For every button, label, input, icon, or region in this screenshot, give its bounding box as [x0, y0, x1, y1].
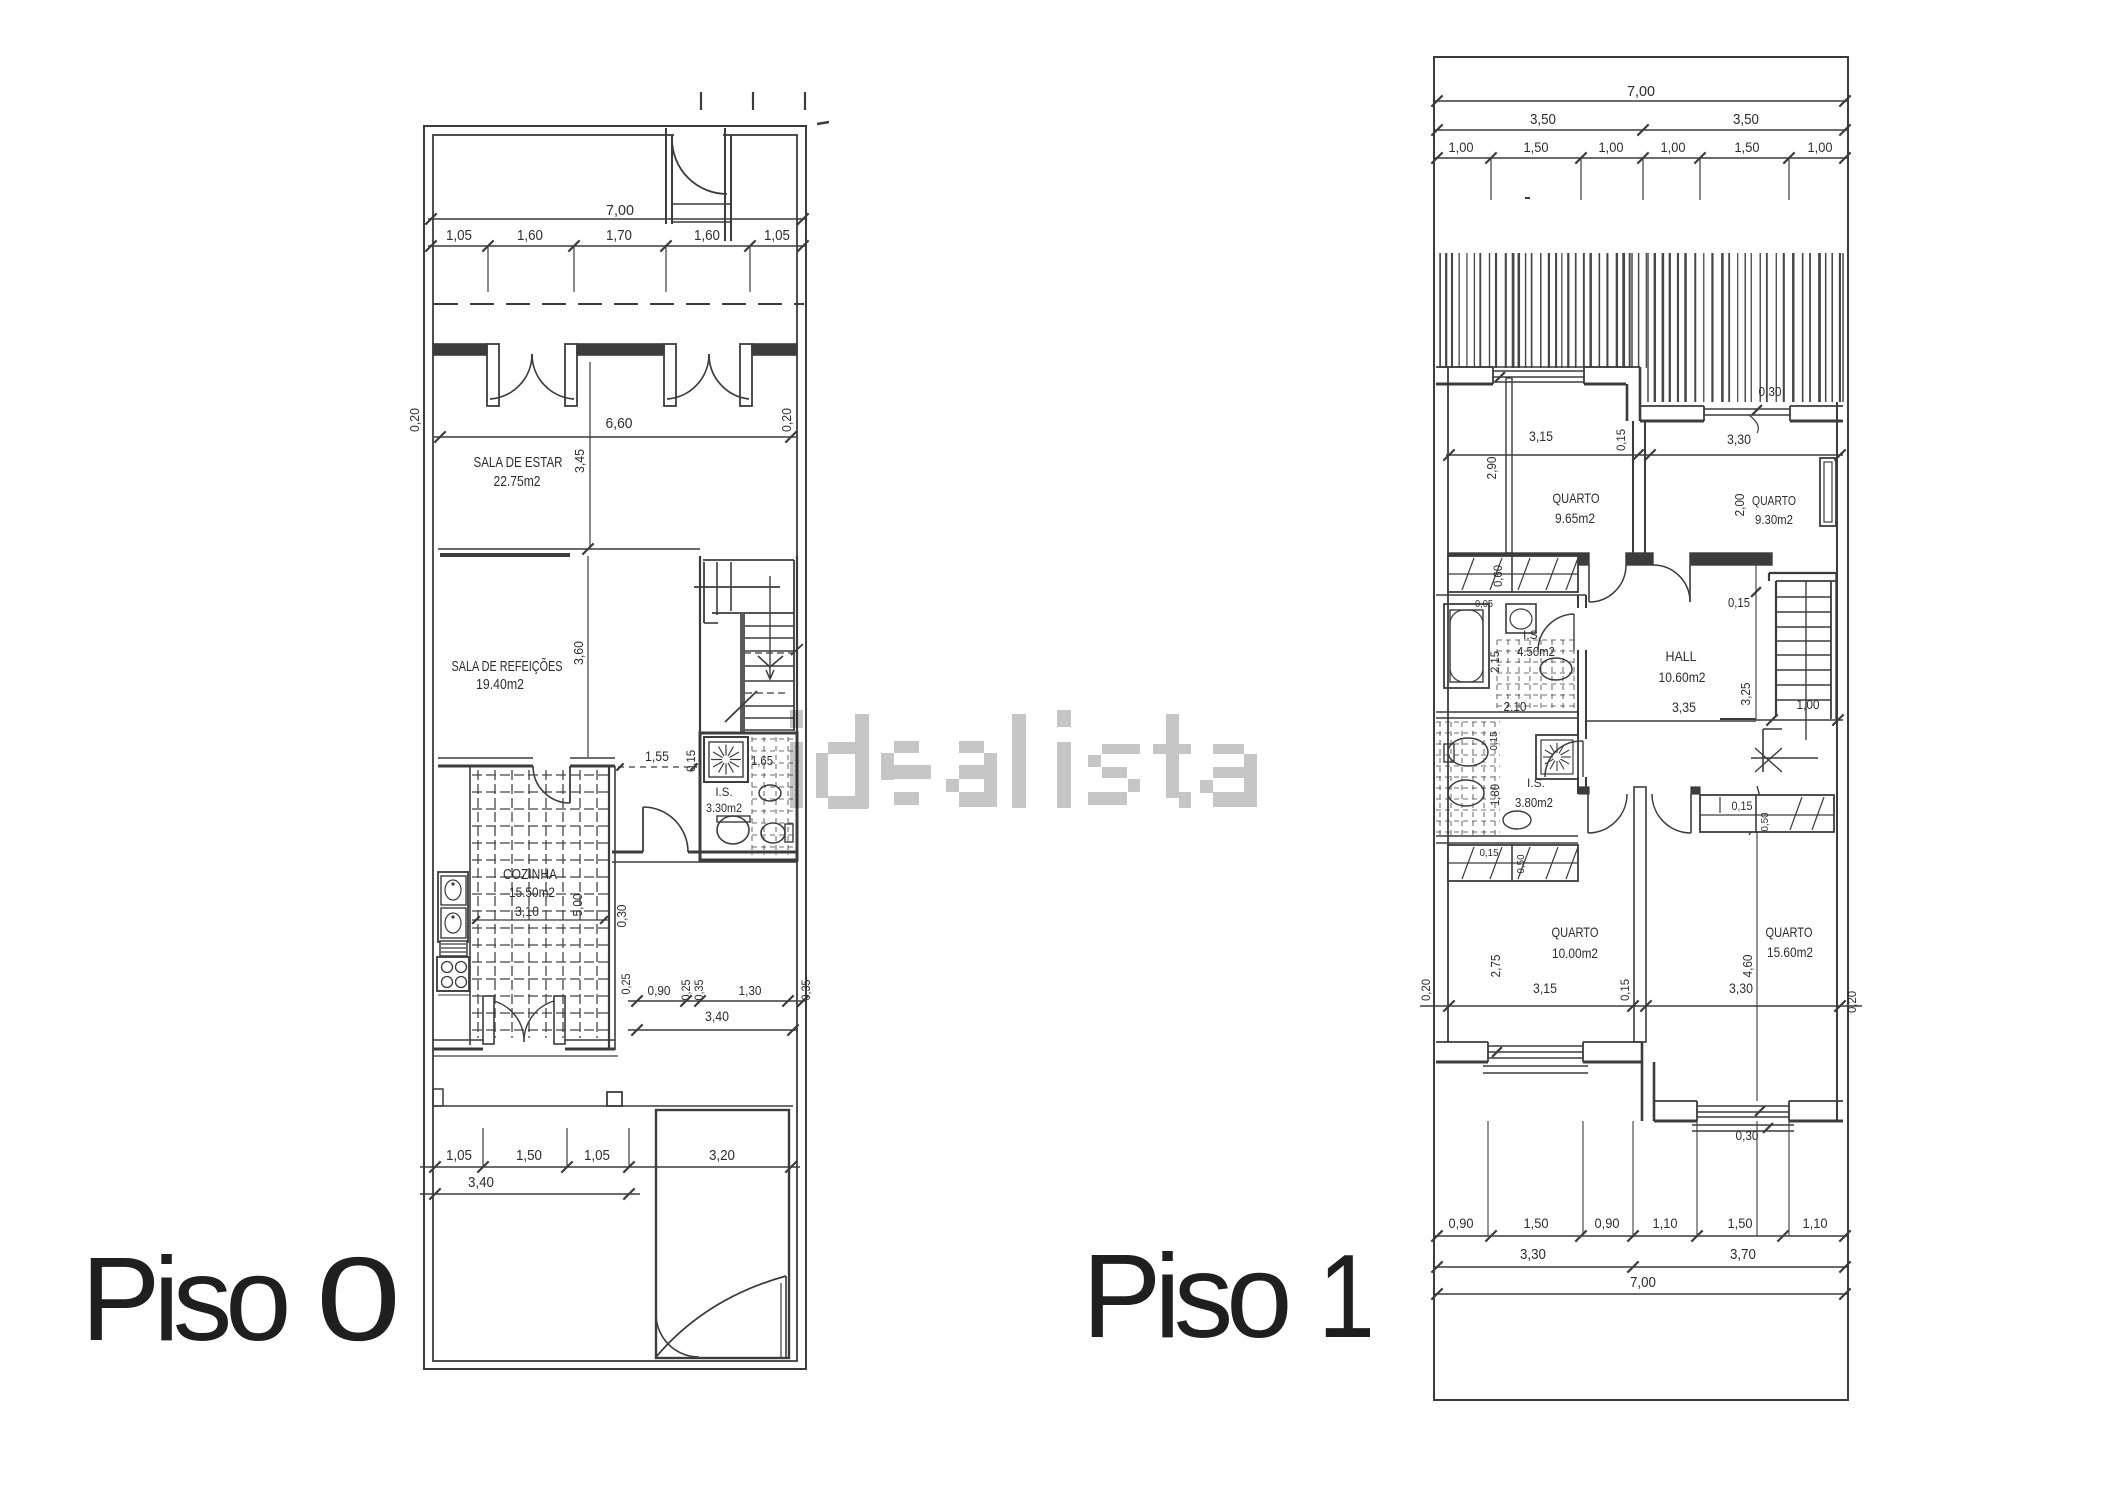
svg-text:7,00: 7,00	[1627, 83, 1655, 100]
svg-text:1: 1	[1318, 1230, 1375, 1363]
svg-text:6,60: 6,60	[606, 415, 633, 432]
svg-text:0,15: 0,15	[1618, 979, 1632, 1001]
svg-text:3,70: 3,70	[1730, 1247, 1756, 1263]
svg-text:3,30: 3,30	[1727, 432, 1751, 447]
svg-text:3,10: 3,10	[515, 904, 539, 919]
svg-text:1,05: 1,05	[764, 228, 790, 244]
svg-text:I.S.: I.S.	[715, 787, 732, 799]
svg-text:HALL: HALL	[1666, 648, 1697, 664]
svg-text:3,35: 3,35	[1672, 700, 1696, 715]
svg-text:1,05: 1,05	[446, 228, 472, 244]
svg-text:1,00: 1,00	[1797, 697, 1820, 712]
svg-text:0,15: 0,15	[1732, 801, 1753, 813]
svg-text:3,25: 3,25	[1738, 683, 1753, 706]
svg-text:1,50: 1,50	[1728, 1215, 1753, 1231]
svg-text:1,05: 1,05	[446, 1148, 472, 1164]
svg-text:1,50: 1,50	[516, 1148, 542, 1164]
svg-text:3,40: 3,40	[705, 1009, 729, 1024]
svg-text:0,15: 0,15	[1480, 847, 1499, 859]
svg-text:3,50: 3,50	[1733, 112, 1759, 128]
svg-text:COZINHA: COZINHA	[503, 867, 557, 883]
svg-text:3.80m2: 3.80m2	[1515, 796, 1553, 810]
svg-text:0,30: 0,30	[615, 904, 629, 927]
svg-text:1,05: 1,05	[584, 1148, 610, 1164]
svg-text:0: 0	[316, 1233, 401, 1366]
svg-text:QUARTO: QUARTO	[1553, 490, 1600, 506]
svg-text:0,20: 0,20	[779, 408, 794, 432]
svg-text:1,00: 1,00	[1449, 139, 1474, 155]
svg-text:1,50: 1,50	[1524, 139, 1549, 155]
svg-text:1,30: 1,30	[739, 983, 762, 998]
svg-text:0,30: 0,30	[1759, 384, 1782, 399]
svg-text:4.50m2: 4.50m2	[1517, 645, 1555, 659]
svg-text:QUARTO: QUARTO	[1552, 924, 1599, 940]
svg-text:9.65m2: 9.65m2	[1555, 511, 1595, 526]
svg-text:1,50: 1,50	[1524, 1215, 1549, 1231]
svg-text:0,90: 0,90	[648, 983, 671, 998]
svg-text:3,45: 3,45	[572, 449, 587, 473]
svg-text:SALA DE REFEIÇÕES: SALA DE REFEIÇÕES	[452, 658, 563, 675]
svg-text:7,00: 7,00	[606, 202, 634, 219]
svg-text:4,60: 4,60	[1740, 955, 1755, 978]
svg-text:1,55: 1,55	[645, 749, 669, 764]
svg-text:0,50: 0,50	[1759, 812, 1771, 831]
svg-text:22.75m2: 22.75m2	[494, 474, 541, 490]
svg-text:0,30: 0,30	[1736, 1128, 1759, 1143]
svg-text:1,00: 1,00	[1808, 139, 1833, 155]
svg-text:0,20: 0,20	[407, 408, 422, 432]
svg-text:0,20: 0,20	[1419, 979, 1433, 1001]
svg-text:2,90: 2,90	[1484, 457, 1499, 480]
svg-text:3,15: 3,15	[1529, 429, 1553, 444]
svg-text:0,15: 0,15	[1728, 596, 1750, 610]
svg-text:3,60: 3,60	[571, 641, 586, 665]
svg-text:5,00: 5,00	[570, 894, 585, 917]
svg-text:2,75: 2,75	[1488, 955, 1503, 978]
svg-text:10.00m2: 10.00m2	[1552, 946, 1598, 961]
svg-text:7,00: 7,00	[1630, 1275, 1656, 1291]
svg-text:3,15: 3,15	[1533, 981, 1557, 996]
svg-text:1,50: 1,50	[1735, 139, 1760, 155]
svg-text:1,70: 1,70	[606, 228, 632, 244]
svg-text:0,05: 0,05	[1475, 599, 1493, 610]
svg-text:1,10: 1,10	[1803, 1215, 1828, 1231]
svg-text:15.60m2: 15.60m2	[1767, 945, 1813, 960]
svg-text:0,60: 0,60	[1491, 565, 1505, 587]
svg-text:1,00: 1,00	[1599, 139, 1624, 155]
svg-text:0,90: 0,90	[1595, 1215, 1620, 1231]
svg-text:1,60: 1,60	[694, 228, 720, 244]
svg-text:15.50m2: 15.50m2	[509, 884, 555, 900]
svg-text:QUARTO: QUARTO	[1766, 924, 1813, 940]
svg-text:1,10: 1,10	[1653, 1215, 1678, 1231]
svg-text:0,90: 0,90	[1449, 1215, 1474, 1231]
svg-text:0,25: 0,25	[621, 974, 633, 995]
svg-text:0,15: 0,15	[1488, 731, 1500, 750]
svg-text:1,60: 1,60	[517, 228, 543, 244]
svg-text:1,65: 1,65	[751, 754, 773, 768]
svg-text:1,00: 1,00	[1661, 139, 1686, 155]
svg-text:3,50: 3,50	[1530, 112, 1556, 128]
svg-text:3,40: 3,40	[468, 1175, 494, 1191]
svg-text:Piso: Piso	[81, 1233, 287, 1366]
svg-text:3.30m2: 3.30m2	[706, 801, 742, 815]
svg-text:0,50: 0,50	[1515, 854, 1527, 873]
svg-text:3,30: 3,30	[1729, 981, 1753, 996]
svg-text:3,30: 3,30	[1520, 1247, 1546, 1263]
svg-text:9.30m2: 9.30m2	[1755, 512, 1793, 527]
svg-text:SALA DE ESTAR: SALA DE ESTAR	[474, 454, 563, 471]
svg-text:19.40m2: 19.40m2	[476, 677, 524, 693]
svg-text:10.60m2: 10.60m2	[1659, 670, 1706, 685]
svg-text:I.S.: I.S.	[1527, 776, 1545, 790]
svg-text:QUARTO: QUARTO	[1752, 493, 1796, 508]
svg-text:0,15: 0,15	[1614, 429, 1628, 451]
svg-text:0,20: 0,20	[1845, 991, 1859, 1013]
svg-text:3,20: 3,20	[709, 1148, 735, 1164]
svg-text:Piso: Piso	[1082, 1230, 1288, 1363]
svg-text:2,00: 2,00	[1732, 494, 1747, 517]
